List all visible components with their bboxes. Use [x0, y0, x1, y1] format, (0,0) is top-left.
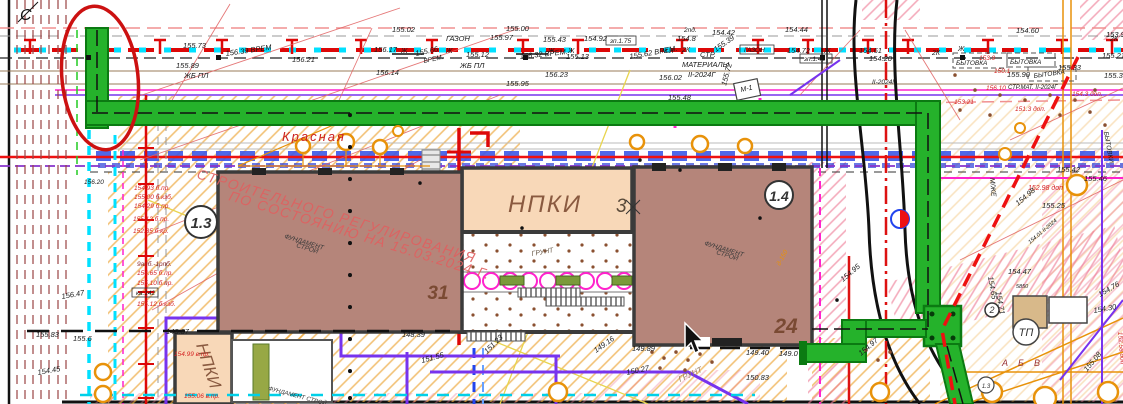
- map-page: CКраснаяСТРОИТЕЛЬНОГО РЕГУЛИРОВАНИЯПО СО…: [0, 0, 1123, 404]
- manhole-icon: [1015, 123, 1025, 133]
- building-number: 31: [427, 283, 448, 304]
- manhole-icon: [738, 139, 752, 153]
- elevation-label: 155.02: [392, 25, 416, 34]
- design-elevation-label: 155.10 б.пр.: [137, 279, 173, 287]
- manhole-icon: [1098, 382, 1118, 402]
- elevation-label: 155.73: [183, 41, 207, 50]
- design-elevation-label: 151.3 доп.: [1015, 105, 1046, 113]
- manhole-icon: [549, 383, 567, 401]
- design-elevation-label: 152.35 б.кр.: [133, 227, 169, 235]
- design-elevation-label: 154.93 б.пр.: [134, 184, 170, 192]
- elevation-label: 154.60: [1016, 26, 1040, 35]
- elevation-label: 154.72: [787, 46, 811, 55]
- design-elevation-label: 155.00 б.кзб.: [134, 193, 173, 201]
- note-label: ГАЗОН: [446, 34, 470, 43]
- steps: [518, 288, 580, 297]
- design-elevation-label: 9апб.-1рпб.: [137, 260, 172, 268]
- note-label: М.Я: [662, 48, 674, 55]
- elevation-label: 149.0: [779, 349, 799, 358]
- note-label: ЖБ ПЛ: [183, 71, 209, 80]
- elevation-label: 156.21: [292, 55, 315, 64]
- elevation-label: 155.90: [1007, 70, 1031, 79]
- utility-letter: Ж: [400, 48, 408, 55]
- elevation-label: 148.39: [402, 330, 426, 339]
- elevation-label: 155.21: [1102, 51, 1123, 60]
- design-elevation-label: 154.99 в.пр.: [174, 351, 210, 358]
- design-elevation-label: 150.1: [994, 68, 1011, 75]
- design-elevation-label: 154.3 доп.: [1072, 90, 1103, 98]
- elevation-label: 155.25: [1042, 201, 1066, 210]
- note-label: зп.1.75: [609, 38, 631, 45]
- note-label: СТР.: [700, 50, 716, 59]
- elevation-label: 156.14: [376, 68, 399, 77]
- elevation-label: 149.40: [746, 348, 770, 357]
- manhole-icon: [373, 140, 387, 154]
- building-name: НПКИ: [508, 191, 582, 218]
- map-canvas[interactable]: CКраснаяСТРОИТЕЛЬНОГО РЕГУЛИРОВАНИЯПО СО…: [0, 0, 1123, 404]
- utility-letter: 2К: [931, 50, 941, 57]
- note-label: ЖБ ПЛ: [459, 61, 485, 70]
- elevation-label: 155.33: [1058, 63, 1082, 72]
- building-number: 24: [773, 315, 798, 338]
- elevation-label: 150.83: [746, 373, 770, 382]
- elevation-label: 154.20: [869, 54, 893, 63]
- manhole-icon: [1034, 387, 1056, 404]
- design-elevation-label: 153.9: [979, 55, 996, 62]
- chamber-bolt: [930, 336, 935, 341]
- manhole-icon: [393, 126, 403, 136]
- tp-label: ТП: [1019, 327, 1034, 339]
- elevation-label: 155.30: [1104, 71, 1123, 80]
- elevation-label: 155.89: [176, 61, 200, 70]
- steps: [546, 297, 624, 306]
- chamber-bolt: [951, 336, 956, 341]
- elevation-label: 154.47: [1008, 267, 1032, 276]
- hatch-zone-pink: [862, 0, 920, 20]
- shrub-icon: [540, 273, 556, 289]
- manhole-icon: [95, 386, 111, 402]
- design-elevation-label: 155.06 в.пр.: [184, 393, 220, 400]
- axis-letter: А: [1001, 358, 1008, 368]
- design-elevation-label: 154.65 б.пр.: [137, 269, 173, 277]
- elevation-label: 153.90: [1106, 30, 1123, 39]
- lawn-patch: [612, 276, 632, 285]
- note-label: БЫТОВКА: [1010, 59, 1041, 66]
- elevation-label: 154.44: [785, 25, 808, 34]
- elevation-label: 155.95: [506, 79, 530, 88]
- elevation-label: 155.83: [36, 330, 60, 339]
- label-number: 1.3: [982, 384, 991, 390]
- elevation-label: 155.48: [668, 93, 692, 102]
- lawn-patch: [500, 276, 524, 285]
- manhole-icon: [999, 148, 1011, 160]
- elevation-label: 155.46: [1084, 174, 1108, 183]
- axis-letter: В: [1034, 358, 1040, 368]
- manhole-icon: [692, 136, 708, 152]
- elevation-label: 155.00: [506, 24, 530, 33]
- elevation-label: 155.42: [1057, 165, 1081, 174]
- note-label: зп.1.43: [803, 56, 825, 63]
- elevation-label: 156.23: [545, 70, 569, 79]
- utility-letter: Ж: [957, 46, 965, 53]
- design-elevation-label: 155.12 б.пр.: [133, 215, 169, 223]
- note-label: II-2024Г.: [872, 79, 897, 86]
- design-elevation-label: 156.10: [986, 85, 1006, 92]
- manhole-icon: [95, 364, 111, 380]
- note-label: МАТЕРИАЛЫ: [682, 60, 730, 69]
- design-elevation-label: 154.29 б.пр.: [134, 202, 170, 210]
- elevation-label: 154.92: [584, 34, 608, 43]
- pipe-cap: [799, 341, 807, 365]
- building-number: 1.3: [191, 215, 213, 232]
- design-elevation-label: 153.21: [954, 99, 974, 106]
- existing-utilities-left: [17, 0, 66, 404]
- elevation-label: 148.87: [166, 327, 190, 336]
- utility-letter: Ж: [823, 48, 831, 55]
- axis-letter: Б: [1018, 358, 1024, 368]
- service-building: [1049, 297, 1087, 323]
- manhole-icon: [630, 135, 644, 149]
- dimension-label: 5850: [1016, 284, 1029, 290]
- elevation-label: 155.97: [490, 33, 514, 42]
- elevation-label: 155.12: [466, 50, 490, 59]
- elevation-label: 156.39 ВРЕМ: [225, 43, 273, 58]
- design-elevation-label: 155.12 б.кзб.: [137, 300, 176, 308]
- note-label: II-2024Г: [688, 70, 716, 79]
- elevation-label: 154.8: [677, 34, 697, 43]
- note-label: 2пд.: [683, 26, 697, 34]
- lawn-patch: [556, 276, 580, 285]
- elevation-label: 155.6: [73, 334, 93, 343]
- building-number: 1.4: [769, 188, 789, 204]
- chamber-bolt: [930, 312, 935, 317]
- manhole-icon: [871, 383, 889, 401]
- elevation-label: 155.43: [543, 35, 567, 44]
- elevation-label: 156.17: [374, 45, 398, 54]
- utility-letter: 2К: [681, 47, 691, 54]
- pipe-green: [804, 344, 866, 362]
- street-name-label: Красная: [282, 129, 346, 144]
- elevation-label: 155.13: [566, 52, 590, 61]
- building-notch: [712, 338, 742, 346]
- utility-letter: Ж: [445, 48, 453, 55]
- building-number: 3: [616, 196, 627, 217]
- elevation-label: 156.20: [84, 179, 104, 186]
- centerline-symbol-label: C: [20, 7, 32, 24]
- label-number: 2: [988, 305, 994, 315]
- elevation-label: 149.89: [632, 344, 656, 353]
- note-label: ГАЗОН: [744, 47, 765, 54]
- note-label: кв.142: [136, 290, 155, 297]
- elevation-label: 156.47: [61, 288, 86, 301]
- elevation-label: 156.02: [659, 73, 683, 82]
- shrub-icon: [597, 273, 613, 289]
- note-label: СТР.МАТ. II-2024Г: [1008, 85, 1058, 91]
